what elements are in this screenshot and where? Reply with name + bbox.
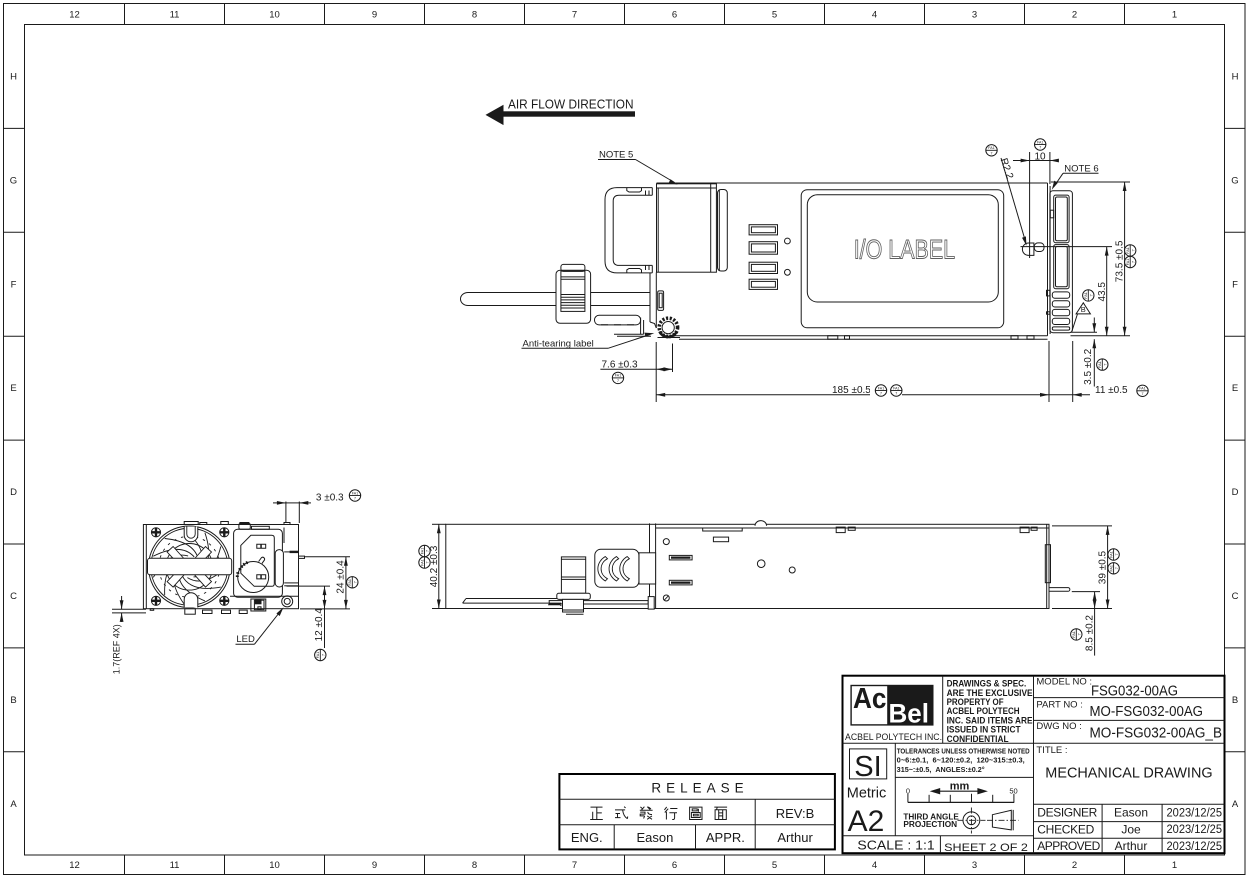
svg-text:2023/12/25: 2023/12/25 (1167, 807, 1223, 819)
svg-text:1: 1 (1172, 860, 1177, 871)
svg-text:315~:±0.5, ANGLES:±0.2°: 315~:±0.5, ANGLES:±0.2° (897, 766, 985, 774)
svg-text:H: H (10, 72, 17, 83)
svg-text:1.7(REF 4X): 1.7(REF 4X) (111, 624, 121, 674)
svg-text:E: E (10, 383, 16, 394)
svg-text:DWG NO :: DWG NO : (1036, 721, 1081, 732)
svg-text:Metric: Metric (847, 786, 886, 802)
svg-text:Anti-tearing label: Anti-tearing label (523, 338, 594, 349)
svg-text:G: G (10, 175, 17, 186)
svg-text:SCALE : 1:1: SCALE : 1:1 (857, 838, 934, 853)
svg-text:TITLE :: TITLE : (1036, 745, 1067, 756)
svg-text:NOTE 5: NOTE 5 (599, 149, 633, 160)
svg-text:Arthur: Arthur (777, 830, 813, 845)
svg-text:ACBEL POLYTECH INC.: ACBEL POLYTECH INC. (845, 732, 942, 742)
svg-text:ENG.: ENG. (571, 830, 603, 845)
svg-text:B: B (1081, 305, 1086, 314)
svg-text:MODEL NO :: MODEL NO : (1036, 677, 1092, 688)
svg-text:6: 6 (672, 860, 677, 871)
svg-text:MO-FSG032-00AG_B: MO-FSG032-00AG_B (1090, 725, 1223, 741)
svg-text:I/O LABEL: I/O LABEL (854, 235, 955, 265)
svg-text:Eason: Eason (1114, 806, 1148, 820)
svg-text:C: C (1232, 591, 1239, 602)
svg-text:E: E (1232, 383, 1238, 394)
svg-text:FSG032-00AG: FSG032-00AG (1091, 684, 1178, 700)
svg-text:G: G (1231, 175, 1238, 186)
svg-text:73.5 ±0.5: 73.5 ±0.5 (1114, 240, 1125, 282)
svg-text:APPROVED: APPROVED (1037, 839, 1100, 853)
svg-text:9: 9 (372, 860, 377, 871)
svg-text:8: 8 (472, 10, 477, 21)
svg-text:12 ±0.4: 12 ±0.4 (314, 608, 325, 642)
svg-text:NOTE 6: NOTE 6 (1064, 163, 1098, 174)
svg-text:Bel: Bel (889, 699, 930, 729)
svg-text:B: B (1232, 695, 1238, 706)
svg-text:40.2 ±0.3: 40.2 ±0.3 (429, 545, 440, 587)
svg-text:LED: LED (236, 634, 255, 645)
svg-text:39 ±0.5: 39 ±0.5 (1097, 550, 1108, 584)
svg-text:C: C (10, 591, 17, 602)
svg-text:11: 11 (170, 860, 180, 871)
svg-text:CHECKED: CHECKED (1037, 822, 1094, 836)
svg-text:2023/12/25: 2023/12/25 (1167, 824, 1223, 836)
svg-text:A: A (10, 799, 17, 810)
svg-text:TOLERANCES UNLESS OTHERWISE NO: TOLERANCES UNLESS OTHERWISE NOTED (897, 749, 1030, 756)
svg-text:3: 3 (972, 860, 977, 871)
svg-text:5: 5 (772, 860, 777, 871)
svg-text:D: D (1232, 487, 1239, 498)
svg-text:4: 4 (872, 860, 877, 871)
svg-text:7: 7 (572, 860, 577, 871)
svg-text:Eason: Eason (636, 830, 673, 845)
svg-text:0~6:±0.1, 6~120:±0.2, 120~31: 0~6:±0.1, 6~120:±0.2, 120~315:±0.3, (897, 758, 1025, 765)
svg-text:APPR.: APPR. (706, 830, 745, 845)
svg-text:Ac: Ac (853, 683, 887, 715)
svg-text:5: 5 (772, 10, 777, 21)
svg-text:2: 2 (1072, 860, 1077, 871)
svg-text:10: 10 (269, 10, 280, 21)
svg-text:MO-FSG032-00AG: MO-FSG032-00AG (1090, 704, 1204, 720)
svg-text:185 ±0.5: 185 ±0.5 (832, 385, 871, 396)
svg-text:11: 11 (170, 10, 180, 21)
svg-text:7: 7 (572, 10, 577, 21)
svg-text:RELEASE: RELEASE (651, 780, 748, 795)
svg-text:H: H (1232, 72, 1239, 83)
svg-text:REV:B: REV:B (776, 806, 815, 821)
svg-text:3.5 ±0.2: 3.5 ±0.2 (1083, 348, 1094, 385)
svg-text:10: 10 (1035, 151, 1047, 162)
svg-text:2: 2 (1072, 10, 1077, 21)
svg-text:24 ±0.4: 24 ±0.4 (335, 560, 346, 594)
svg-text:11 ±0.5: 11 ±0.5 (1095, 385, 1128, 396)
svg-text:8: 8 (472, 860, 477, 871)
svg-text:DESIGNER: DESIGNER (1037, 806, 1097, 820)
svg-text:AIR FLOW DIRECTION: AIR FLOW DIRECTION (508, 98, 634, 112)
svg-text:Arthur: Arthur (1115, 839, 1148, 853)
svg-text:PART NO :: PART NO : (1036, 699, 1082, 710)
svg-text:3 ±0.3: 3 ±0.3 (316, 492, 344, 503)
svg-text:F: F (11, 279, 17, 290)
svg-text:4: 4 (872, 10, 877, 21)
svg-text:SHEET 2 OF 2: SHEET 2 OF 2 (944, 842, 1028, 854)
svg-text:B: B (10, 695, 16, 706)
svg-text:43.5: 43.5 (1097, 282, 1108, 302)
svg-text:SI: SI (854, 751, 881, 783)
svg-text:2023/12/25: 2023/12/25 (1167, 841, 1223, 853)
svg-text:A: A (1232, 799, 1239, 810)
svg-text:F: F (1232, 279, 1238, 290)
svg-text:12: 12 (69, 10, 80, 21)
svg-text:D: D (10, 487, 17, 498)
svg-text:1: 1 (1172, 10, 1177, 21)
svg-text:9: 9 (372, 10, 377, 21)
svg-text:MECHANICAL DRAWING: MECHANICAL DRAWING (1045, 766, 1212, 782)
svg-text:A2: A2 (848, 805, 885, 838)
svg-text:12: 12 (69, 860, 80, 871)
svg-text:Joe: Joe (1121, 822, 1141, 836)
svg-text:CONFIDENTIAL: CONFIDENTIAL (947, 734, 1010, 744)
svg-text:10: 10 (269, 860, 280, 871)
svg-text:3: 3 (972, 10, 977, 21)
svg-text:6: 6 (672, 10, 677, 21)
svg-text:8.5 ±0.2: 8.5 ±0.2 (1084, 615, 1095, 652)
svg-text:PROJECTION: PROJECTION (903, 819, 957, 829)
